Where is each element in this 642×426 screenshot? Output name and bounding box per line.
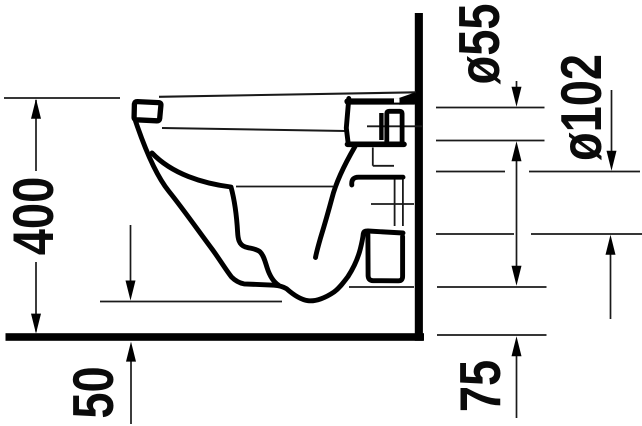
svg-text:ø102: ø102 [551,54,614,161]
svg-text:50: 50 [63,366,126,418]
svg-text:400: 400 [3,177,66,255]
svg-text:75: 75 [450,360,513,412]
svg-text:ø55: ø55 [449,4,512,85]
